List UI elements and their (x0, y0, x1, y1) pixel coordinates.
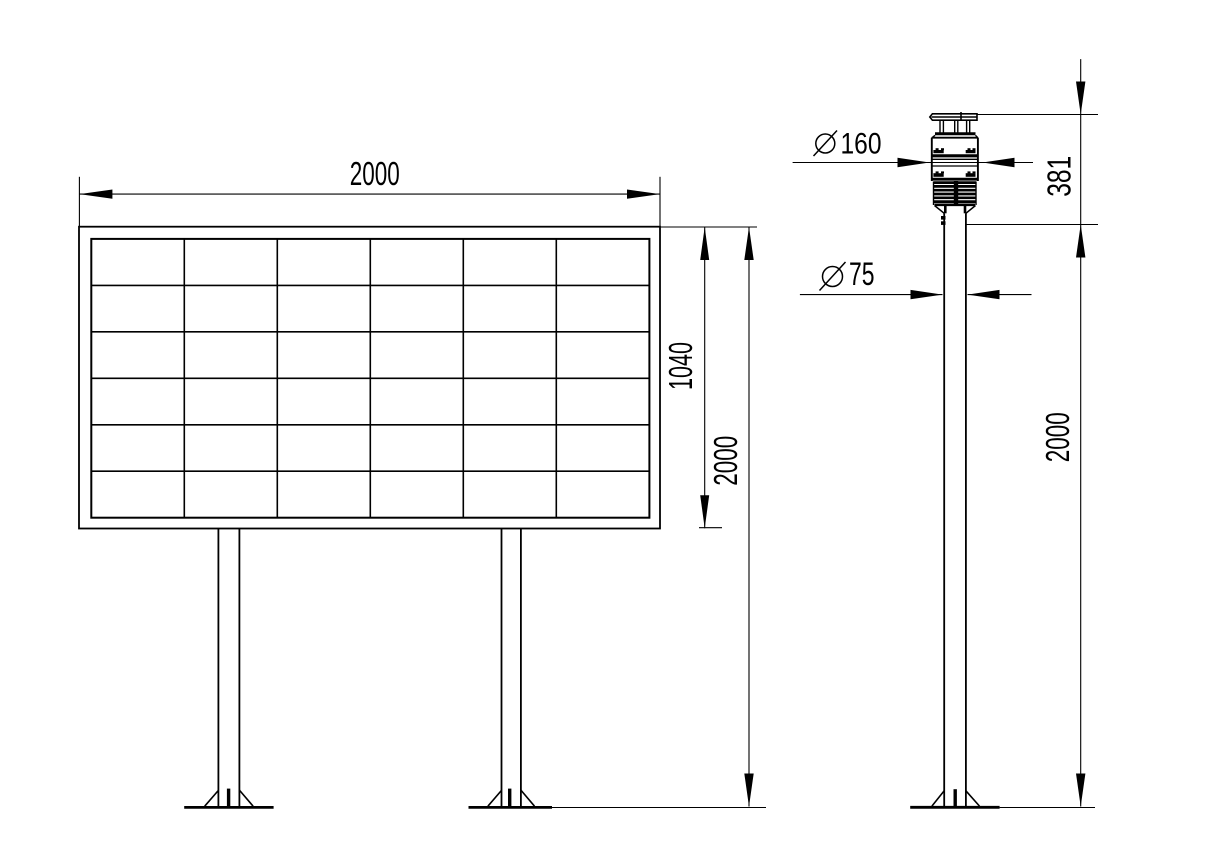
svg-text:75: 75 (849, 256, 875, 292)
svg-text:1040: 1040 (662, 342, 699, 390)
svg-text:2000: 2000 (707, 436, 744, 486)
svg-text:160: 160 (841, 128, 882, 161)
svg-text:2000: 2000 (1039, 412, 1076, 462)
svg-text:2000: 2000 (350, 155, 400, 192)
svg-text:381: 381 (1041, 156, 1078, 197)
